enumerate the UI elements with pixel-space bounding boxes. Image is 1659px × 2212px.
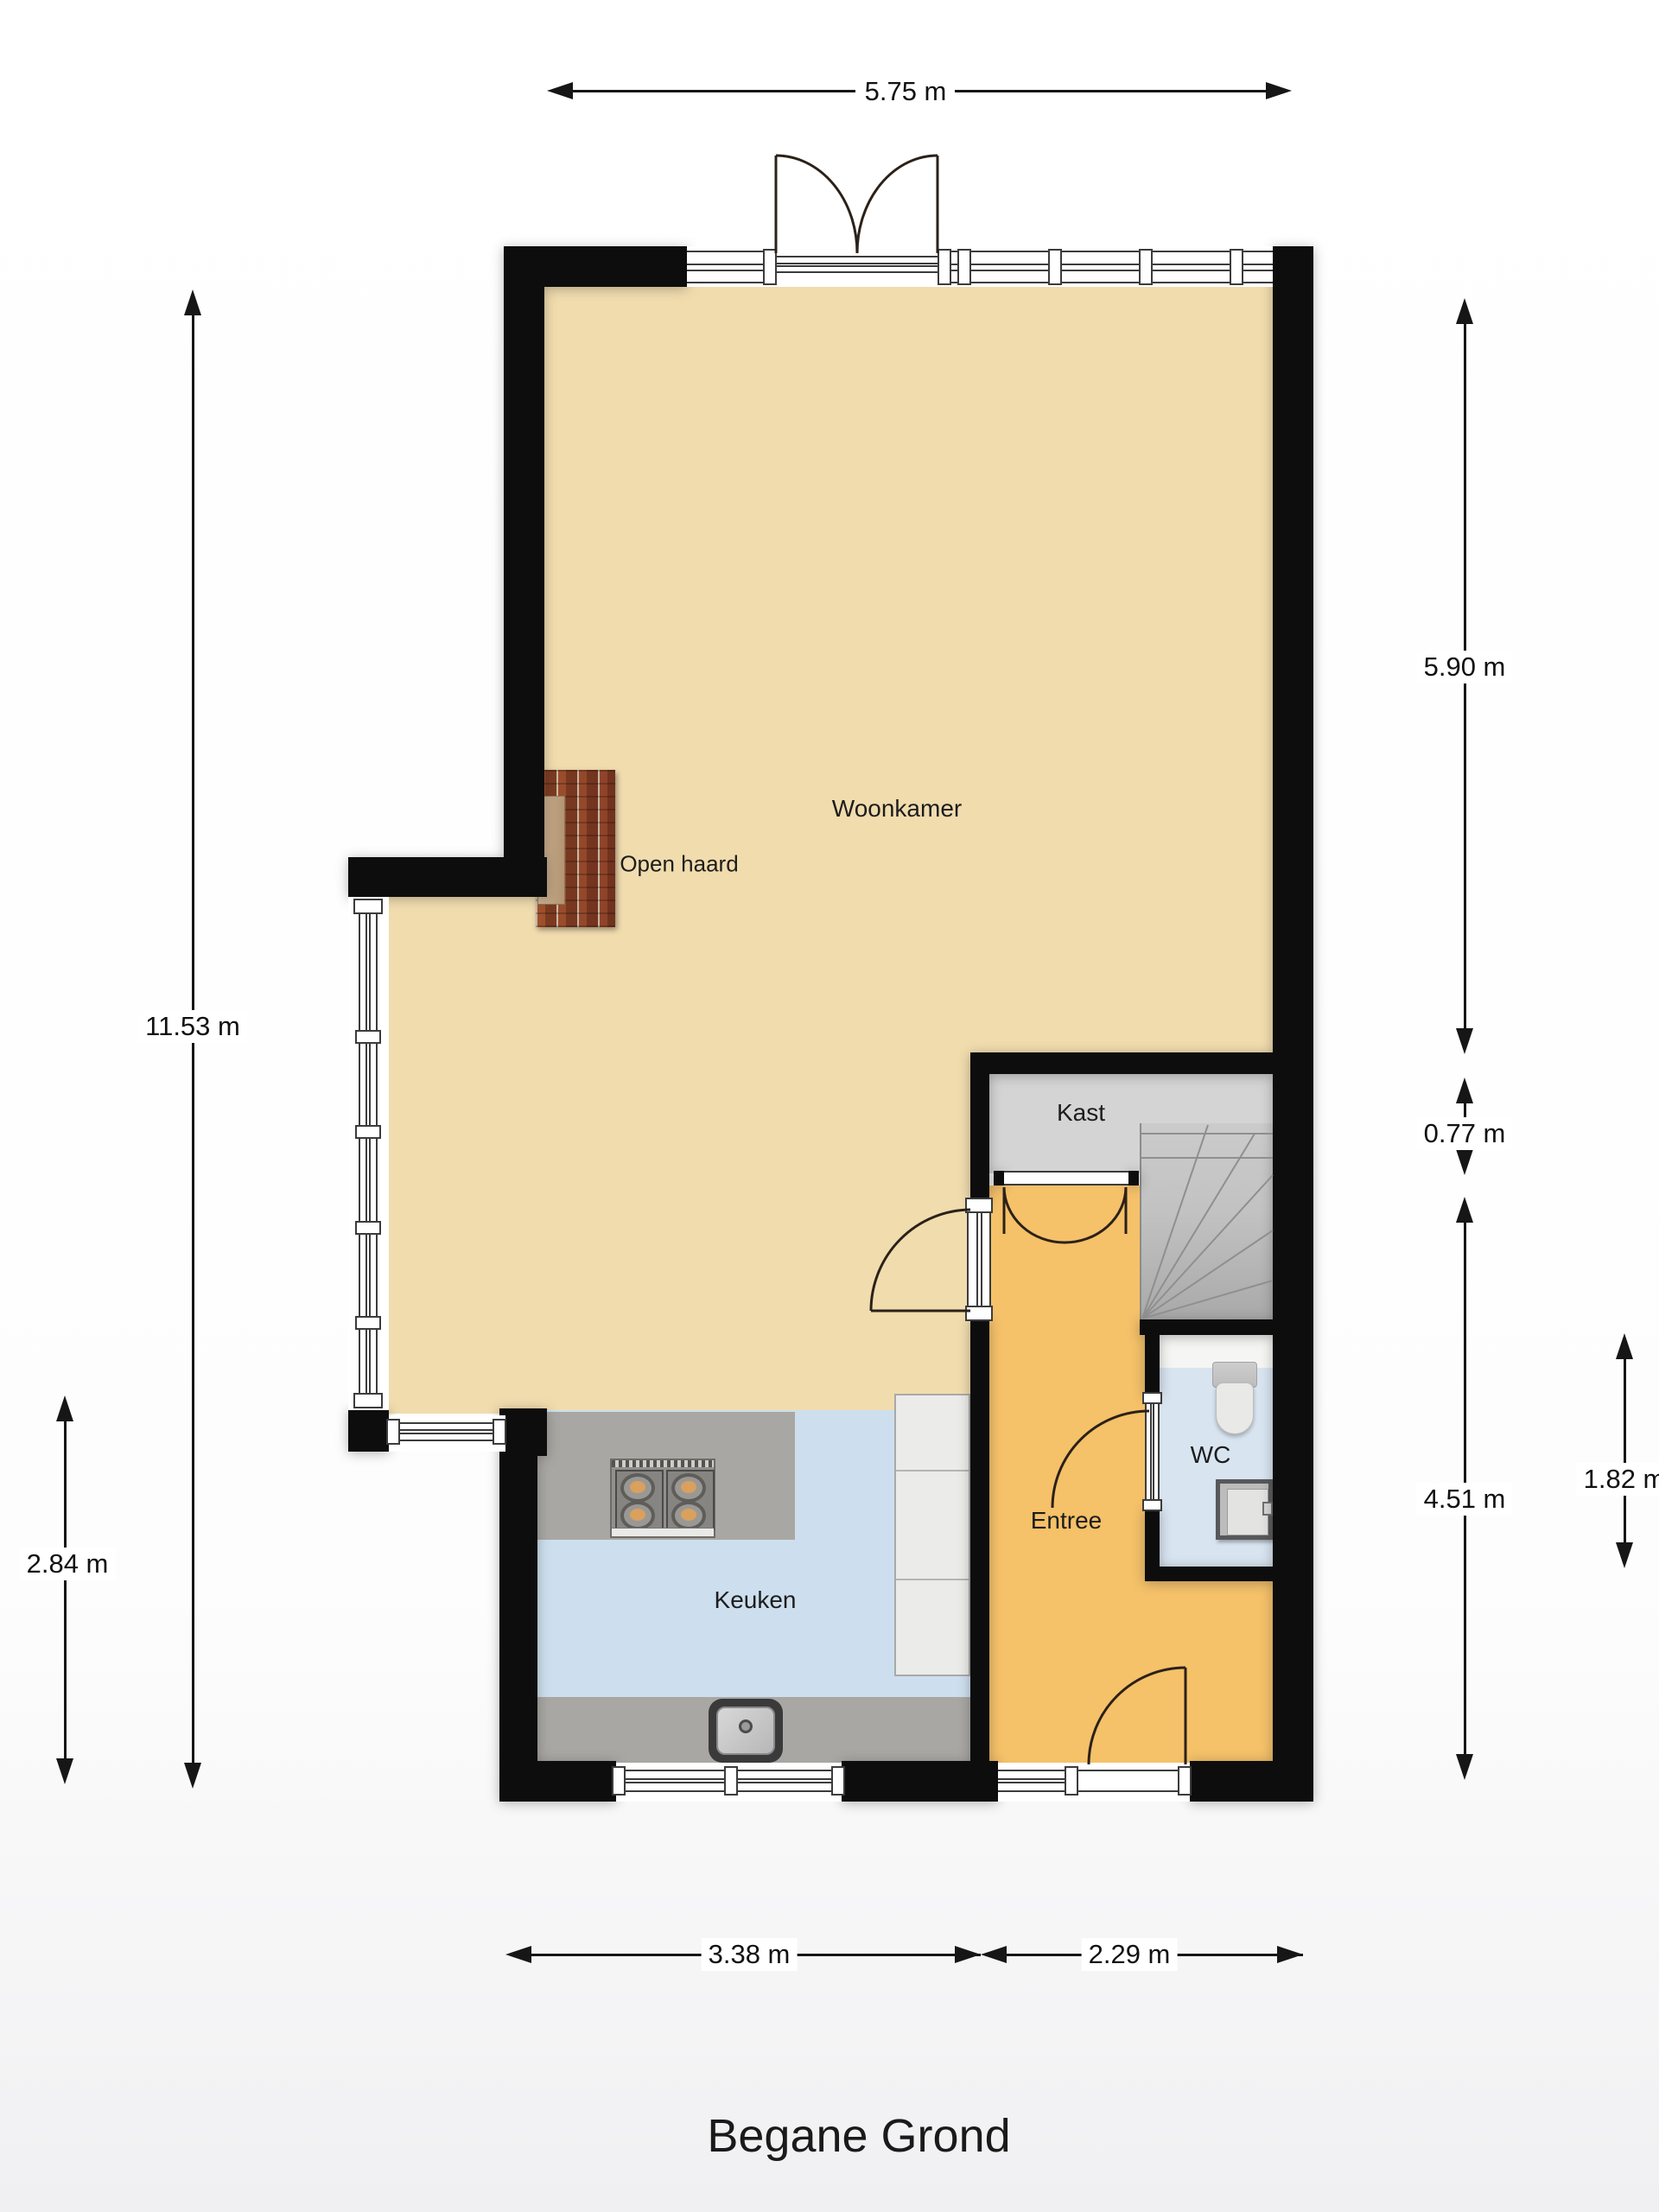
dim-right3-arrow-down: [1456, 1754, 1473, 1780]
wall-interior-upper: [970, 1052, 989, 1201]
dim-left2-label: 2.84 m: [20, 1548, 116, 1580]
woonkamer-door-cap-top: [965, 1198, 993, 1213]
dim-wc-arrow-down: [1616, 1542, 1633, 1568]
dim-wc-arrow-up: [1616, 1333, 1633, 1359]
wc-tap: [1262, 1502, 1273, 1516]
wc-door-frame: [1145, 1395, 1160, 1508]
top-window-mullion-3: [1048, 249, 1062, 285]
bumpout-bottom-window: [389, 1422, 505, 1441]
wall-left-upper: [504, 246, 544, 897]
page-title: Begane Grond: [707, 2109, 1010, 2163]
left-window-cap-bottom: [353, 1393, 383, 1408]
top-window-right: [938, 251, 1273, 283]
woonkamer-door-frame: [967, 1201, 991, 1318]
wall-kast-door-jamb-right: [1128, 1171, 1139, 1185]
dim-bottom1-arrow-right: [955, 1946, 981, 1963]
dim-bottom2-arrow-right: [1277, 1946, 1303, 1963]
stove: [610, 1459, 715, 1538]
bumpout-window-cap-right: [493, 1419, 506, 1445]
top-window-jamb-left: [763, 249, 777, 285]
bumpout-window-cap-left: [386, 1419, 400, 1445]
floorplan-page: Woonkamer Open haard Kast Entree WC Keuk…: [0, 0, 1659, 2212]
entry-door-right-arc: [857, 156, 938, 253]
front-door-frame: [1070, 1770, 1190, 1792]
left-window-mullion-1: [355, 1030, 381, 1044]
wall-right: [1273, 246, 1313, 1802]
entry-door-threshold: [776, 256, 938, 273]
kitchen-window-1: [616, 1770, 731, 1792]
entree-window: [998, 1770, 1070, 1792]
dim-right3-label: 4.51 m: [1417, 1483, 1513, 1516]
cabinet-door-1: [896, 1395, 969, 1471]
dim-right1-label: 5.90 m: [1417, 651, 1513, 683]
woonkamer-door-cap-bottom: [965, 1306, 993, 1321]
left-window-cap-top: [353, 899, 383, 914]
dim-top-arrow-right: [1266, 82, 1292, 99]
dim-bottom2-arrow-left: [981, 1946, 1007, 1963]
dim-right1-arrow-up: [1456, 298, 1473, 324]
dim-bottom1-label: 3.38 m: [702, 1938, 798, 1971]
left-window-mullion-4: [355, 1316, 381, 1330]
woonkamer-floor-bumpout: [385, 895, 540, 1414]
woonkamer-floor: [527, 276, 1279, 1058]
wall-bottom-mid: [842, 1761, 998, 1802]
burner-1: [620, 1473, 655, 1503]
dim-top-line-a: [557, 90, 855, 92]
dim-left2-arrow-down: [56, 1758, 73, 1784]
label-woonkamer: Woonkamer: [832, 795, 962, 823]
kitchen-sink: [709, 1699, 783, 1763]
wc-door-cap-bottom: [1142, 1499, 1162, 1511]
dim-wc-label: 1.82 m: [1577, 1463, 1659, 1496]
dim-right1-arrow-down: [1456, 1028, 1473, 1054]
label-kast: Kast: [1057, 1099, 1105, 1127]
kitchen-window-2: [731, 1770, 842, 1792]
dim-top-label: 5.75 m: [858, 75, 954, 108]
label-keuken: Keuken: [715, 1586, 797, 1614]
dim-right3-arrow-up: [1456, 1197, 1473, 1223]
kitchen-window-cap-left: [612, 1766, 626, 1796]
wall-wc-left-lower: [1145, 1508, 1160, 1567]
kitchen-cabinet: [894, 1394, 970, 1676]
kitchen-sink-basin: [716, 1707, 775, 1755]
entree-floor: [987, 1185, 1147, 1764]
kitchen-window-cap-right: [831, 1766, 845, 1796]
toilet-bowl: [1216, 1382, 1254, 1434]
dim-left-arrow-up: [184, 289, 201, 315]
burner-2: [671, 1473, 706, 1503]
dim-left-arrow-down: [184, 1763, 201, 1789]
dim-wc-line: [1624, 1342, 1626, 1560]
wall-kast-top: [970, 1052, 1313, 1074]
wall-bumpout-corner: [348, 1408, 389, 1452]
entree-floor-lower: [1145, 1581, 1274, 1764]
wall-under-stairs: [1140, 1319, 1273, 1335]
top-window-mullion-4: [1139, 249, 1153, 285]
kast-door-frame: [1004, 1171, 1128, 1185]
top-window-mullion-1: [938, 249, 951, 285]
entry-door-left-arc: [776, 156, 857, 253]
top-window-mullion-5: [1230, 249, 1243, 285]
kitchen-window-mullion: [724, 1766, 738, 1796]
wall-kast-door-jamb-left: [994, 1171, 1004, 1185]
kitchen-sink-drain: [739, 1719, 753, 1733]
dim-right3-line: [1464, 1205, 1466, 1758]
dim-right2-label: 0.77 m: [1417, 1117, 1513, 1150]
dim-right2-arrow-up: [1456, 1077, 1473, 1103]
wc-door-cap-top: [1142, 1392, 1162, 1404]
top-window-mullion-2: [957, 249, 971, 285]
dim-left2-arrow-up: [56, 1395, 73, 1421]
dim-top-arrow-left: [547, 82, 573, 99]
burner-3: [620, 1501, 655, 1530]
left-window-mullion-2: [355, 1125, 381, 1139]
wall-bottom-left: [499, 1761, 616, 1802]
wall-interior-lower: [970, 1318, 989, 1761]
left-window-mullion-3: [355, 1221, 381, 1235]
wall-bottom-right: [1190, 1761, 1313, 1802]
dim-bottom2-label: 2.29 m: [1082, 1938, 1178, 1971]
cabinet-door-2: [896, 1471, 969, 1580]
dim-bottom1-arrow-left: [505, 1946, 531, 1963]
wall-wc-bottom: [1145, 1567, 1273, 1581]
dim-top-line-b: [955, 90, 1285, 92]
cabinet-door-3: [896, 1580, 969, 1671]
stove-knob-strip: [612, 1528, 714, 1536]
stairs: [1140, 1123, 1273, 1319]
label-entree: Entree: [1031, 1507, 1103, 1535]
front-door-jamb-right: [1178, 1766, 1192, 1796]
wall-left-lower: [499, 1408, 537, 1802]
dim-left2-line: [64, 1404, 67, 1776]
label-open-haard: Open haard: [620, 851, 738, 878]
dim-left-label: 11.53 m: [138, 1010, 247, 1043]
label-wc: WC: [1191, 1441, 1231, 1469]
burner-4: [671, 1501, 706, 1530]
front-door-jamb-left: [1065, 1766, 1078, 1796]
wall-wc-left-upper: [1145, 1335, 1160, 1395]
stove-grill-strip: [612, 1460, 714, 1467]
dim-right2-arrow-down: [1456, 1149, 1473, 1175]
woonkamer-floor-lower: [527, 1052, 976, 1414]
wall-bumpout-top: [348, 857, 547, 897]
